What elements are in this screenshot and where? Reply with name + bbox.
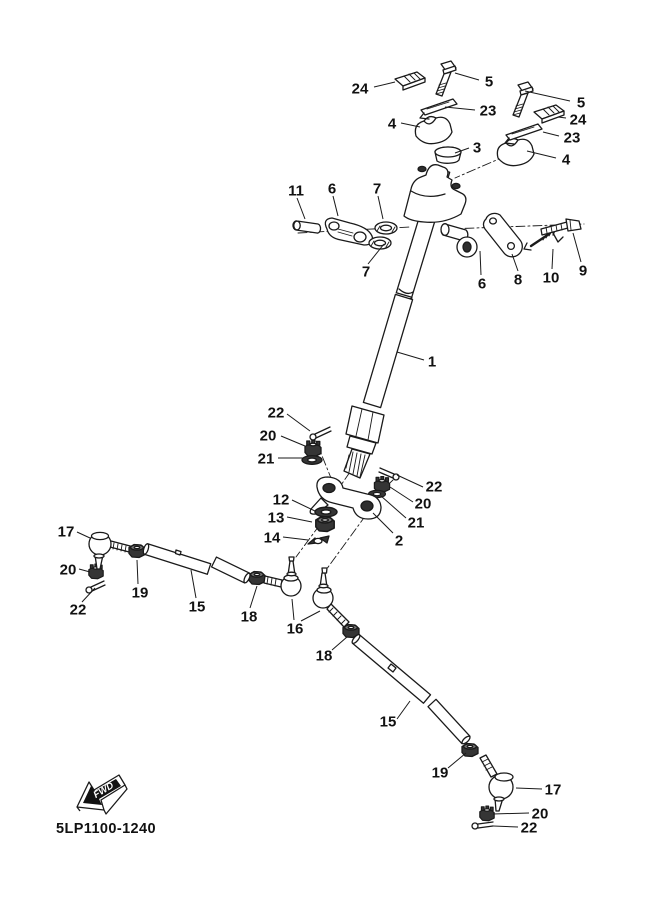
callout-9: 9 [573,233,587,280]
callout-label-20: 20 [415,496,432,513]
callout-label-7: 7 [362,264,370,281]
part-lock-washer-14 [308,536,329,544]
callout-label-12: 12 [273,492,290,509]
callout-19: 19 [132,560,149,602]
callout-5: 5 [455,73,493,91]
callout-22: 22 [493,820,537,837]
callout-label-22: 22 [70,602,87,619]
callout-label-17: 17 [545,782,562,799]
part-handlebar-holder-right [497,139,534,166]
part-washer-12 [315,507,337,516]
part-cotter-pin-lower-left [86,581,105,593]
part-damper-left [395,72,425,90]
callout-8: 8 [512,254,522,289]
callout-22: 22 [70,588,95,619]
callout-label-22: 22 [521,820,538,837]
diagram-code: 5LP1100-1240 [56,821,156,837]
callout-label-16: 16 [287,621,304,638]
part-castle-nut-lower-right [480,806,494,821]
callout-6: 6 [328,181,338,217]
part-tie-rod-end-outer-left [89,532,134,569]
part-spring-washer-upper [375,222,397,234]
callout-label-15: 15 [189,599,206,616]
part-spring-washer-lower [369,237,391,249]
part-holder-plate-left [420,99,457,119]
callout-label-7: 7 [373,181,381,198]
callout-label-5: 5 [485,74,493,91]
callout-label-21: 21 [258,451,275,468]
part-cap [435,147,461,163]
part-pin [293,221,321,233]
callout-label-9: 9 [579,263,587,280]
callout-label-22: 22 [426,479,443,496]
callout-label-4: 4 [562,152,571,169]
callout-20: 20 [60,562,90,579]
callout-label-6: 6 [328,181,336,198]
callout-18: 18 [316,637,347,665]
callout-22: 22 [397,475,442,496]
part-bolt [541,219,581,235]
part-shaft-crown [404,165,466,223]
callout-label-18: 18 [316,648,333,665]
callout-label-1: 1 [428,354,436,371]
callout-label-13: 13 [268,510,285,527]
part-washer-upper-left [302,456,322,465]
callout-6: 6 [478,251,486,293]
callout-label-20: 20 [60,562,77,579]
callout-24: 24 [352,81,395,98]
callout-2: 2 [373,513,403,550]
callout-1: 1 [397,352,436,371]
callout-label-8: 8 [514,272,522,289]
callout-label-2: 2 [395,533,403,550]
callout-label-20: 20 [260,428,277,445]
callout-label-5: 5 [577,95,585,112]
callout-7: 7 [373,181,383,220]
part-castle-nut-upper-left [305,440,321,456]
callout-label-22: 22 [268,405,285,422]
callout-14: 14 [264,530,308,547]
part-flange-bolt-left [436,61,456,96]
callout-12: 12 [273,492,315,512]
part-cotter-pin-upper-left [310,427,331,440]
callout-label-19: 19 [132,585,149,602]
part-tie-rod-end-inner-right [313,568,349,627]
parts-diagram: 2452343524234116776810912220212220212121… [0,0,661,913]
callout-21: 21 [258,451,303,468]
part-plate-link [483,213,522,256]
part-handlebar-holder-left [415,117,452,144]
callout-15: 15 [189,570,206,616]
part-tie-rod-end-inner-left [264,557,301,596]
part-lock-nut-18-left [249,572,265,585]
part-tie-rod-left [142,543,251,583]
callout-20: 20 [260,428,305,447]
callout-13: 13 [268,510,312,527]
callout-label-21: 21 [408,515,425,532]
part-bracket-left [325,218,372,245]
part-flange-bolt-right [513,82,533,117]
callout-19: 19 [432,753,466,782]
part-tie-rod-end-outer-right [480,755,513,811]
callout-17: 17 [58,524,90,541]
callout-label-10: 10 [543,270,560,287]
callout-label-3: 3 [473,140,481,157]
callout-label-24: 24 [570,112,587,129]
callout-10: 10 [543,249,560,287]
callout-label-23: 23 [564,130,581,147]
callout-11: 11 [288,183,305,220]
callout-label-17: 17 [58,524,75,541]
part-nut-13 [316,517,334,532]
part-damper-right [534,105,564,123]
callout-18: 18 [241,586,258,626]
callout-23: 23 [543,130,580,147]
callout-label-6: 6 [478,276,486,293]
callout-label-14: 14 [264,530,281,547]
callout-label-15: 15 [380,714,397,731]
fwd-arrow-icon: FWD [77,775,127,814]
callout-label-23: 23 [480,103,497,120]
callout-15: 15 [380,701,410,731]
part-cotter-pin-lower-right [472,822,493,829]
part-tie-rod-right [351,633,471,745]
callout-label-11: 11 [288,183,304,200]
callout-label-18: 18 [241,609,258,626]
callout-label-4: 4 [388,116,397,133]
callout-17: 17 [516,782,561,799]
callout-label-19: 19 [432,765,449,782]
callout-label-24: 24 [352,81,369,98]
part-bracket-right [441,224,477,257]
